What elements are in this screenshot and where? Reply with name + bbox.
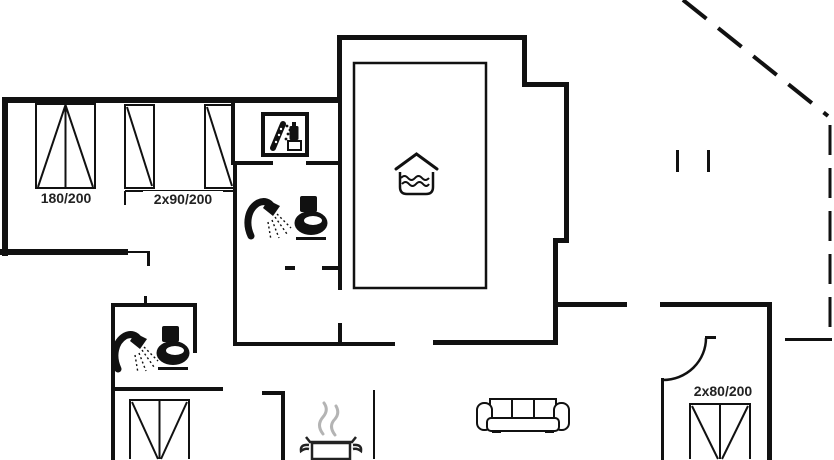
wall	[306, 161, 340, 165]
wall	[111, 303, 115, 460]
terrace-dashed-line	[683, 0, 830, 334]
wall	[522, 35, 527, 87]
wall	[660, 302, 772, 307]
wall-opening-tick	[676, 150, 679, 172]
wall	[337, 35, 342, 103]
bed-size-label-2x90-200: 2x90/200	[143, 191, 223, 207]
wall	[338, 103, 342, 290]
wall	[661, 378, 664, 460]
wall	[231, 161, 273, 165]
wall	[147, 251, 150, 266]
door-swing-arc	[663, 338, 706, 380]
wall	[144, 296, 147, 304]
wall	[111, 303, 196, 307]
wall	[285, 266, 295, 270]
wall	[233, 342, 395, 346]
toilet-icon	[157, 326, 190, 370]
wall	[433, 340, 558, 345]
wall	[337, 35, 527, 40]
bed-bottom-left	[130, 400, 189, 459]
wall	[522, 82, 569, 87]
wall	[564, 82, 569, 243]
wall	[322, 266, 340, 270]
toilet-icon	[295, 196, 328, 240]
sofa-icon	[477, 399, 569, 432]
bed-size-label-180-200: 180/200	[28, 190, 104, 206]
wall	[281, 391, 285, 460]
wall	[338, 323, 342, 344]
hot-tub-icon	[396, 154, 437, 194]
floor-plan: 180/200 2x90/200 2x80/200	[0, 0, 834, 460]
steam-icon	[320, 403, 338, 435]
wall	[2, 97, 342, 103]
terrace-edge-line	[785, 338, 832, 341]
bed-size-label-2x80-200: 2x80/200	[682, 383, 764, 399]
bed-twin-2x90	[125, 105, 234, 205]
wall	[126, 251, 150, 253]
shower-icon	[115, 333, 158, 373]
bed-double-180	[36, 104, 95, 188]
wall	[111, 387, 223, 391]
wall	[555, 302, 627, 307]
washing-machine-icon	[263, 114, 307, 155]
wall-opening-tick	[707, 150, 710, 172]
wall	[553, 238, 558, 345]
wall	[0, 249, 128, 255]
wall	[767, 302, 772, 460]
wall	[193, 303, 197, 353]
shower-icon	[248, 200, 291, 240]
wall	[2, 97, 8, 256]
cooking-pot-icon	[301, 437, 361, 459]
wall	[373, 390, 375, 459]
bed-2x80	[690, 404, 750, 459]
